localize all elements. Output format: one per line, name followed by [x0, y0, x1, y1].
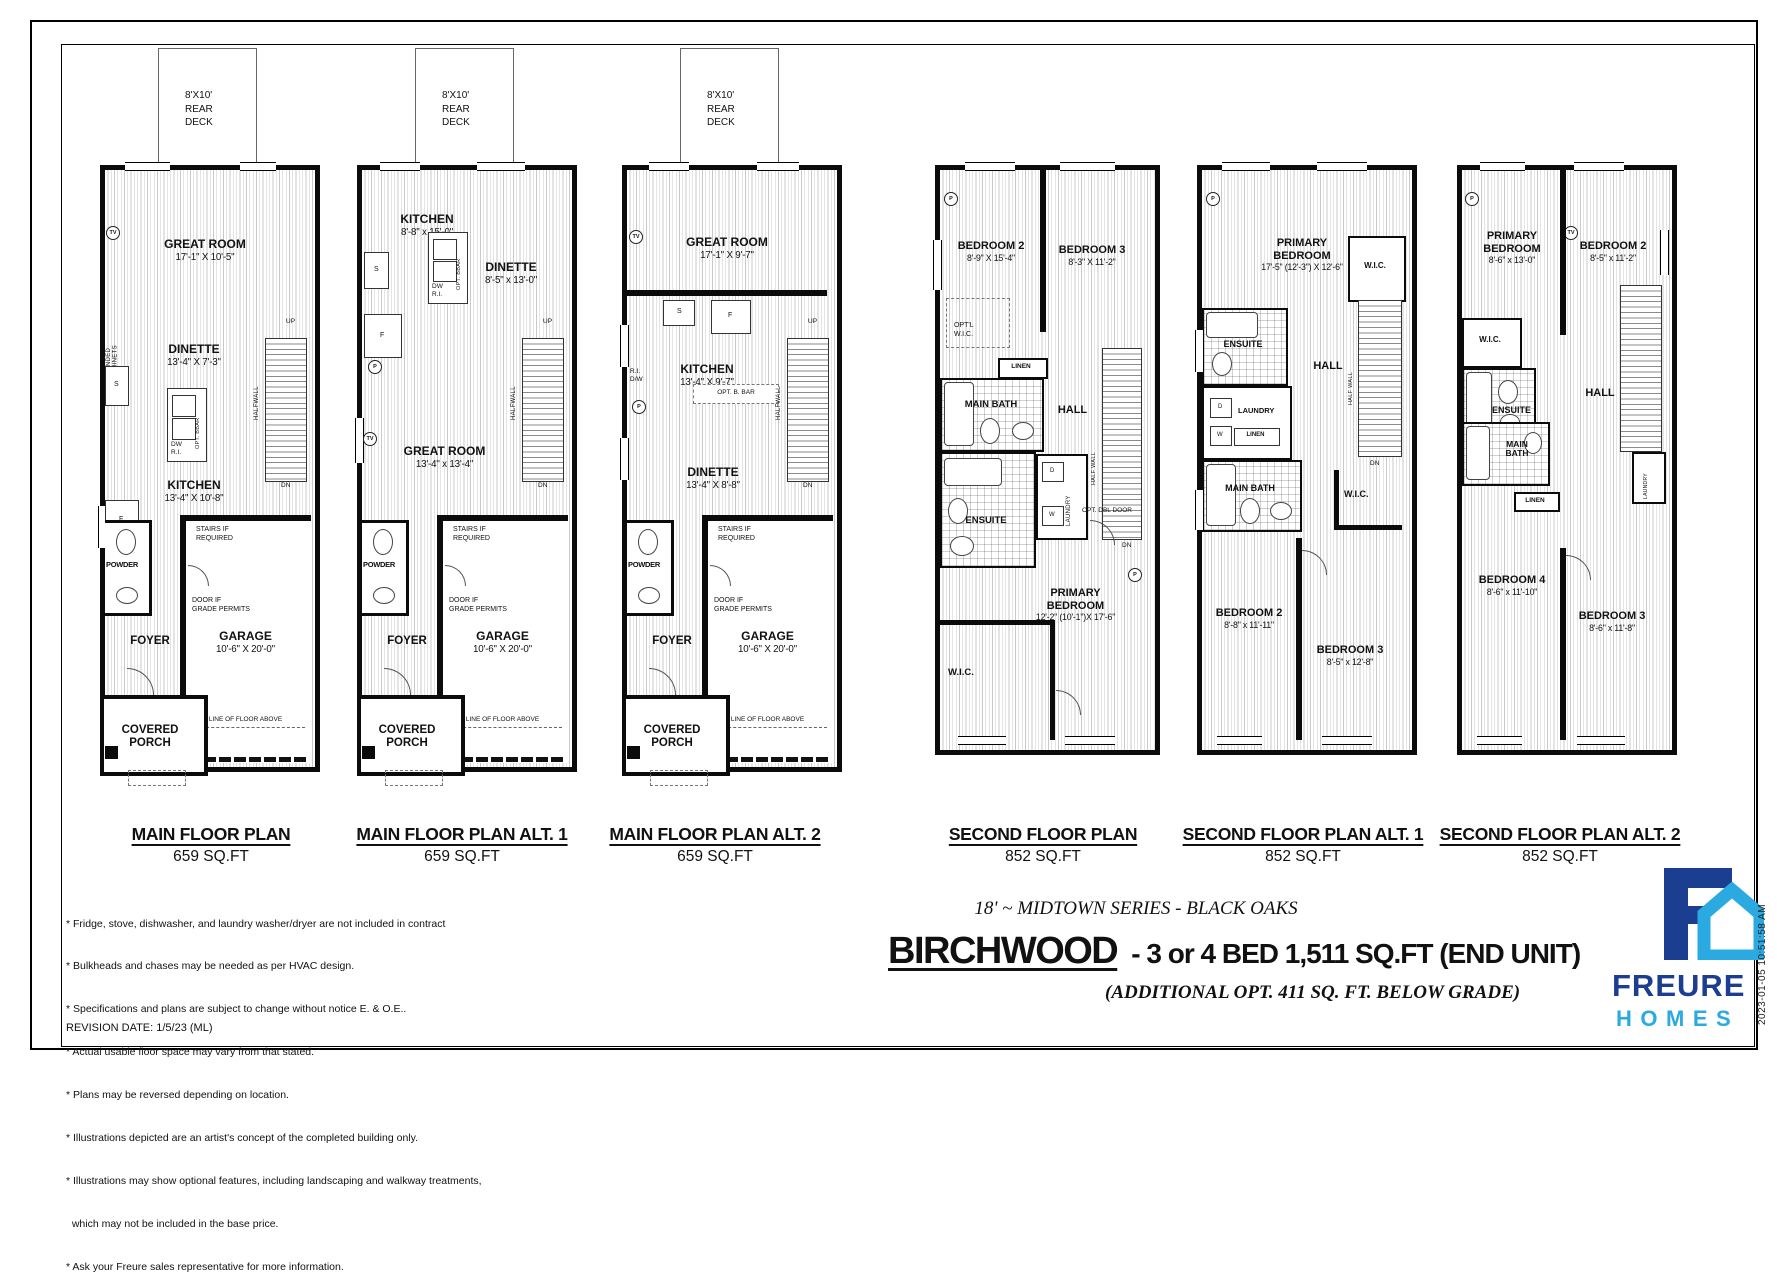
disclaimer-line: * Ask your Freure sales representative f… — [66, 1260, 482, 1274]
dryer-label: D — [1218, 404, 1222, 412]
linen-label: LINEN — [1235, 432, 1276, 440]
laundry-label: LAUNDRY — [1066, 466, 1073, 526]
fridge-label: F — [728, 312, 732, 321]
disclaimer-line: * Fridge, stove, dishwasher, and laundry… — [66, 917, 482, 931]
rear-deck-label: 8'X10' REAR DECK — [442, 89, 470, 130]
linen-label: LINEN — [1516, 497, 1554, 505]
linen-closet: LINEN — [1234, 428, 1280, 446]
covered-porch: COVERED PORCH — [357, 695, 465, 776]
stove-label: S — [374, 266, 379, 275]
window-marker — [1195, 490, 1204, 530]
staircase — [265, 338, 307, 482]
powder-room: POWDER — [627, 520, 674, 616]
bathtub — [944, 382, 974, 446]
window-marker — [1660, 230, 1669, 275]
kitchen-island: OPT. BBAR DW R.I. — [167, 388, 207, 462]
opt-breakfast-bar-note: OPT. B. BAR — [694, 389, 778, 397]
room-label-ensuite: ENSUITE — [1492, 406, 1531, 416]
freure-homes-logo: FREURE HOMES — [1612, 868, 1762, 1040]
linen-label: LINEN — [1000, 363, 1042, 371]
door-swing-arc — [445, 565, 466, 586]
exterior-walls: P PRIMARY BEDROOM8'-6" x 13'-0" TV BEDRO… — [1457, 165, 1677, 755]
fridge-label: F — [380, 332, 384, 341]
dryer-label: D — [1050, 468, 1054, 476]
window-marker — [125, 162, 170, 171]
main-bath: MAIN BATH — [1462, 422, 1550, 486]
room-label-great-room: GREAT ROOM13'-4" x 13'-4" — [362, 432, 527, 471]
floor-plan-sheet: { "sheet": { "revision": "REVISION DATE:… — [0, 0, 1777, 1080]
room-label-powder: POWDER — [106, 561, 138, 569]
logo-brand-text: FREURE — [1612, 968, 1745, 1004]
window-marker — [1577, 736, 1625, 745]
plan-title-second-alt2: SECOND FLOOR PLAN ALT. 2 — [1350, 824, 1770, 845]
opt-double-door-note: OPT. DBL DOOR — [1082, 507, 1132, 515]
half-wall-note: HALF WALL — [1091, 425, 1097, 485]
fridge: F — [711, 300, 751, 334]
room-label-great-room: GREAT ROOM17'-1" X 10'-5" — [105, 225, 305, 264]
halfwall-note: HALFWALL — [776, 365, 783, 420]
room-label-powder: POWDER — [628, 561, 660, 569]
exterior-walls: TV OPT'L EXTENDED LOWER CABINETS GREAT R… — [100, 165, 320, 772]
ensuite: ENSUITE — [940, 452, 1036, 568]
staircase — [1620, 285, 1662, 452]
p-marker: P — [1465, 192, 1479, 206]
window-marker — [477, 162, 525, 171]
porch-post — [362, 746, 375, 759]
room-label-primary-bedroom: PRIMARY BEDROOM8'-6" x 13'-0" — [1462, 218, 1562, 266]
door-swing-arc — [1056, 690, 1081, 715]
room-label-dinette: DINETTE8'-5" x 13'-0" — [460, 248, 562, 287]
main-bath: MAIN BATH — [940, 378, 1044, 452]
door-swing-arc — [1302, 550, 1327, 575]
room-label-wic: W.I.C. — [1464, 336, 1516, 345]
dishwasher-roughin-note: DW R.I. — [432, 283, 443, 299]
washer: W — [1210, 426, 1232, 446]
covered-porch: COVERED PORCH — [622, 695, 730, 776]
room-label-garage: GARAGE10'-6" X 20'-0" — [443, 617, 562, 656]
sink — [638, 587, 660, 604]
front-door-arc — [127, 668, 154, 695]
stove: S — [663, 300, 695, 326]
tv-marker: TV — [629, 230, 643, 244]
disclaimer-line: * Plans may be reversed depending on loc… — [66, 1088, 482, 1102]
stairs-up-note: UP — [543, 318, 552, 326]
fridge: F — [364, 314, 402, 358]
stairs-down-note: DN — [281, 482, 290, 490]
island-dishwasher — [433, 261, 457, 282]
window-marker — [1480, 162, 1525, 171]
opt-breakfast-bar-note: OPT. BBAR — [195, 394, 201, 449]
staircase — [522, 338, 564, 482]
linen-closet: LINEN — [998, 358, 1048, 379]
room-label-powder: POWDER — [363, 561, 395, 569]
dryer: D — [1042, 462, 1064, 482]
room-label-foyer: FOYER — [632, 622, 712, 648]
tv-marker: TV — [363, 432, 377, 446]
p-marker: P — [944, 192, 958, 206]
room-label-hall: HALL — [1302, 348, 1354, 373]
plan-area-second-alt2: 852 SQ.FT — [1350, 848, 1770, 866]
stove-label: S — [114, 381, 119, 390]
porch-steps — [128, 770, 186, 786]
bathtub — [1206, 312, 1258, 338]
powder-room: POWDER — [105, 520, 152, 616]
model-name: BIRCHWOOD — [888, 930, 1117, 972]
room-label-garage: GARAGE10'-6" X 20'-0" — [708, 617, 827, 656]
staircase — [1358, 300, 1402, 457]
model-title: BIRCHWOOD- 3 or 4 BED 1,511 SQ.FT (END U… — [888, 930, 1580, 973]
sink — [1012, 422, 1034, 440]
window-marker — [1060, 162, 1115, 171]
staircase — [787, 338, 829, 482]
porch-steps — [650, 770, 708, 786]
disclaimer-line: * Illustrations may show optional featur… — [66, 1174, 482, 1188]
room-label-bedroom3: BEDROOM 38'-3" X 11'-2" — [1042, 232, 1142, 267]
disclaimer-line: * Illustrations depicted are an artist's… — [66, 1131, 482, 1145]
window-marker — [958, 736, 1006, 745]
room-label-dinette: DINETTE13'-4" X 7'-3" — [105, 330, 283, 369]
powder-room: POWDER — [362, 520, 409, 616]
exterior-walls: P PRIMARY BEDROOM17'-5" (12'-3") X 12'-6… — [1197, 165, 1417, 755]
toilet — [980, 418, 1000, 444]
interior-wall — [1334, 525, 1402, 530]
plan-main-floor-alt1: 8'X10' REAR DECK KITCHEN8'-8" x 15'-0" S… — [357, 48, 567, 788]
stove-label: S — [677, 308, 682, 317]
room-label-ensuite: ENSUITE — [942, 516, 1030, 526]
revision-date: REVISION DATE: 1/5/23 (ML) — [66, 1022, 213, 1034]
door-if-grade-note: DOOR IF GRADE PERMITS — [449, 597, 507, 615]
covered-porch: COVERED PORCH — [100, 695, 208, 776]
interior-wall — [1334, 470, 1339, 530]
stairs-down-note: DN — [538, 482, 547, 490]
p-marker: P — [368, 360, 382, 374]
window-marker — [380, 162, 420, 171]
room-label-wic2: W.I.C. — [1344, 490, 1369, 500]
laundry-closet: D W LAUNDRY LINEN — [1202, 386, 1292, 460]
window-marker — [965, 162, 1015, 171]
stairs-up-note: UP — [808, 318, 817, 326]
stairs-if-required-note: STAIRS IF REQUIRED — [196, 526, 233, 544]
wic-closet: W.I.C. — [1462, 318, 1522, 368]
plan-second-floor: P BEDROOM 28'-9" X 15'-4" BEDROOM 38'-3"… — [935, 165, 1150, 745]
halfwall-note: HALFWALL — [254, 365, 261, 420]
room-label-hall: HALL — [1045, 392, 1100, 417]
model-specs: - 3 or 4 BED 1,511 SQ.FT (END UNIT) — [1131, 938, 1580, 969]
ensuite: ENSUITE — [1202, 308, 1288, 386]
stairs-down-note: DN — [1122, 542, 1131, 550]
room-label-bedroom3: BEDROOM 38'-6" x 11'-8" — [1562, 598, 1662, 633]
door-swing-arc — [1566, 555, 1591, 580]
stairs-if-required-note: STAIRS IF REQUIRED — [718, 526, 755, 544]
room-label-foyer: FOYER — [367, 622, 447, 648]
linen-closet: LINEN — [1514, 492, 1560, 512]
window-marker — [620, 325, 629, 367]
disclaimer-list: * Fridge, stove, dishwasher, and laundry… — [66, 888, 482, 1288]
rear-deck-outline: 8'X10' REAR DECK — [680, 48, 779, 168]
window-marker — [1222, 162, 1270, 171]
laundry-closet: D W LAUNDRY — [1036, 454, 1088, 540]
window-marker — [649, 162, 689, 171]
stairs-up-note: UP — [286, 318, 295, 326]
window-marker — [1065, 736, 1115, 745]
room-label-kitchen: KITCHEN8'-8" x 15'-0" — [362, 200, 492, 239]
room-label-bedroom2: BEDROOM 28'-5" x 11'-2" — [1564, 228, 1662, 263]
disclaimer-line: which may not be included in the base pr… — [66, 1217, 482, 1231]
window-marker — [1217, 736, 1262, 745]
bathtub — [1206, 464, 1236, 526]
freure-logo-icon — [1664, 868, 1764, 960]
p-marker: P — [632, 400, 646, 414]
logo-sub-text: HOMES — [1616, 1006, 1739, 1032]
room-label-bedroom3: BEDROOM 38'-5" x 12'-8" — [1300, 632, 1400, 667]
door-swing-arc — [710, 565, 731, 586]
main-bath: MAIN BATH — [1202, 460, 1302, 532]
room-label-main-bath: MAIN BATH — [1492, 440, 1542, 459]
rear-deck-label: 8'X10' REAR DECK — [185, 89, 213, 130]
sink — [950, 536, 974, 556]
room-label-covered-porch: COVERED PORCH — [361, 711, 453, 750]
room-label-wic: W.I.C. — [948, 668, 974, 678]
plan-main-floor-alt2: 8'X10' REAR DECK GREAT ROOM17'-1" X 9'-7… — [622, 48, 832, 788]
window-marker — [1574, 162, 1624, 171]
window-marker — [240, 162, 276, 171]
room-label-bedroom2: BEDROOM 28'-8" x 11'-11" — [1202, 595, 1296, 630]
room-label-bedroom2: BEDROOM 28'-9" X 15'-4" — [940, 228, 1042, 263]
front-door-arc — [384, 668, 411, 695]
door-swing-arc — [188, 565, 209, 586]
room-label-great-room: GREAT ROOM17'-1" X 9'-7" — [627, 223, 827, 262]
room-label-primary-bedroom: PRIMARY BEDROOM12'-2" (10'-1")X 17'-6" — [1008, 575, 1143, 623]
room-label-garage: GARAGE10'-6" X 20'-0" — [186, 617, 305, 656]
island-dishwasher — [172, 418, 196, 440]
washer: W — [1042, 506, 1064, 526]
washer-label: W — [1049, 512, 1055, 520]
half-wall-note: HALF WALL — [1348, 350, 1354, 405]
interior-wall — [627, 290, 827, 296]
sink — [1270, 502, 1292, 520]
porch-steps — [385, 770, 443, 786]
front-door-arc — [649, 668, 676, 695]
porch-post — [105, 746, 118, 759]
porch-post — [627, 746, 640, 759]
print-timestamp: 2023-01-05 10:51:58 AM — [1757, 850, 1768, 1025]
dryer: D — [1210, 398, 1232, 418]
toilet — [638, 529, 658, 555]
exterior-walls: P BEDROOM 28'-9" X 15'-4" BEDROOM 38'-3"… — [935, 165, 1160, 755]
disclaimer-line: * Bulkheads and chases may be needed as … — [66, 959, 482, 973]
stove: S — [105, 366, 129, 406]
plan-main-floor: 8'X10' REAR DECK TV OPT'L EXTENDED LOWER… — [100, 48, 310, 788]
room-label-bedroom4: BEDROOM 48'-6" x 11'-10" — [1462, 562, 1562, 597]
opt-breakfast-bar: OPT. B. BAR — [693, 384, 779, 404]
island-sink — [433, 239, 457, 260]
laundry-label: LAUNDRY — [1238, 406, 1274, 415]
stove: S — [364, 252, 389, 289]
exterior-walls: GREAT ROOM17'-1" X 9'-7" TV S F KITCHEN1… — [622, 165, 842, 772]
dishwasher-roughin-note: DW R.I. — [171, 441, 182, 457]
bathtub — [1466, 426, 1490, 480]
room-label-wic: W.I.C. — [1350, 262, 1400, 271]
plan-second-floor-alt2: P PRIMARY BEDROOM8'-6" x 13'-0" TV BEDRO… — [1457, 165, 1667, 745]
bathtub — [944, 458, 1002, 486]
toilet — [116, 529, 136, 555]
rear-deck-label: 8'X10' REAR DECK — [707, 89, 735, 130]
disclaimer-line: * Actual usable floor space may vary fro… — [66, 1045, 482, 1059]
window-marker — [1477, 736, 1522, 745]
dishwasher-roughin-note: R.I. D/W — [630, 368, 643, 384]
toilet — [373, 529, 393, 555]
wic-closet: W.I.C. — [1348, 236, 1406, 302]
sink — [116, 587, 138, 604]
exterior-walls: KITCHEN8'-8" x 15'-0" S OPT. BBAR DW R.I… — [357, 165, 577, 772]
window-marker — [1322, 736, 1372, 745]
additional-area-note: (ADDITIONAL OPT. 411 SQ. FT. BELOW GRADE… — [1105, 982, 1520, 1004]
window-marker — [1195, 330, 1204, 372]
rear-deck-outline: 8'X10' REAR DECK — [415, 48, 514, 168]
room-label-covered-porch: COVERED PORCH — [104, 711, 196, 750]
toilet — [1498, 380, 1518, 404]
halfwall-note: HALFWALL — [511, 365, 518, 420]
room-label-covered-porch: COVERED PORCH — [626, 711, 718, 750]
laundry-label: LAUNDRY — [1644, 457, 1650, 499]
plan-second-floor-alt1: P PRIMARY BEDROOM17'-5" (12'-3") X 12'-6… — [1197, 165, 1407, 745]
series-title: 18' ~ MIDTOWN SERIES - BLACK OAKS — [936, 898, 1336, 920]
laundry-closet: LAUNDRY — [1632, 452, 1666, 504]
island-sink — [172, 395, 196, 417]
window-marker — [620, 438, 629, 480]
door-if-grade-note: DOOR IF GRADE PERMITS — [714, 597, 772, 615]
room-label-dinette: DINETTE13'-4" X 8'-8" — [627, 453, 799, 492]
room-label-ensuite: ENSUITE — [1204, 340, 1282, 350]
door-if-grade-note: DOOR IF GRADE PERMITS — [192, 597, 250, 615]
washer-label: W — [1217, 432, 1223, 440]
disclaimer-line: * Specifications and plans are subject t… — [66, 1002, 482, 1016]
interior-wall — [940, 620, 1054, 625]
stairs-down-note: DN — [803, 482, 812, 490]
room-label-main-bath: MAIN BATH — [944, 400, 1038, 410]
stairs-if-required-note: STAIRS IF REQUIRED — [453, 526, 490, 544]
toilet — [1240, 498, 1260, 524]
room-label-main-bath: MAIN BATH — [1204, 484, 1296, 494]
optional-wic-note: OPT'L W.I.C. — [954, 322, 974, 340]
stairs-down-note: DN — [1370, 460, 1379, 468]
room-label-foyer: FOYER — [110, 622, 190, 648]
toilet — [1212, 352, 1232, 376]
p-marker: P — [1206, 192, 1220, 206]
window-marker — [1317, 162, 1367, 171]
window-marker — [757, 162, 799, 171]
rear-deck-outline: 8'X10' REAR DECK — [158, 48, 257, 168]
sink — [373, 587, 395, 604]
interior-wall — [1050, 620, 1055, 740]
